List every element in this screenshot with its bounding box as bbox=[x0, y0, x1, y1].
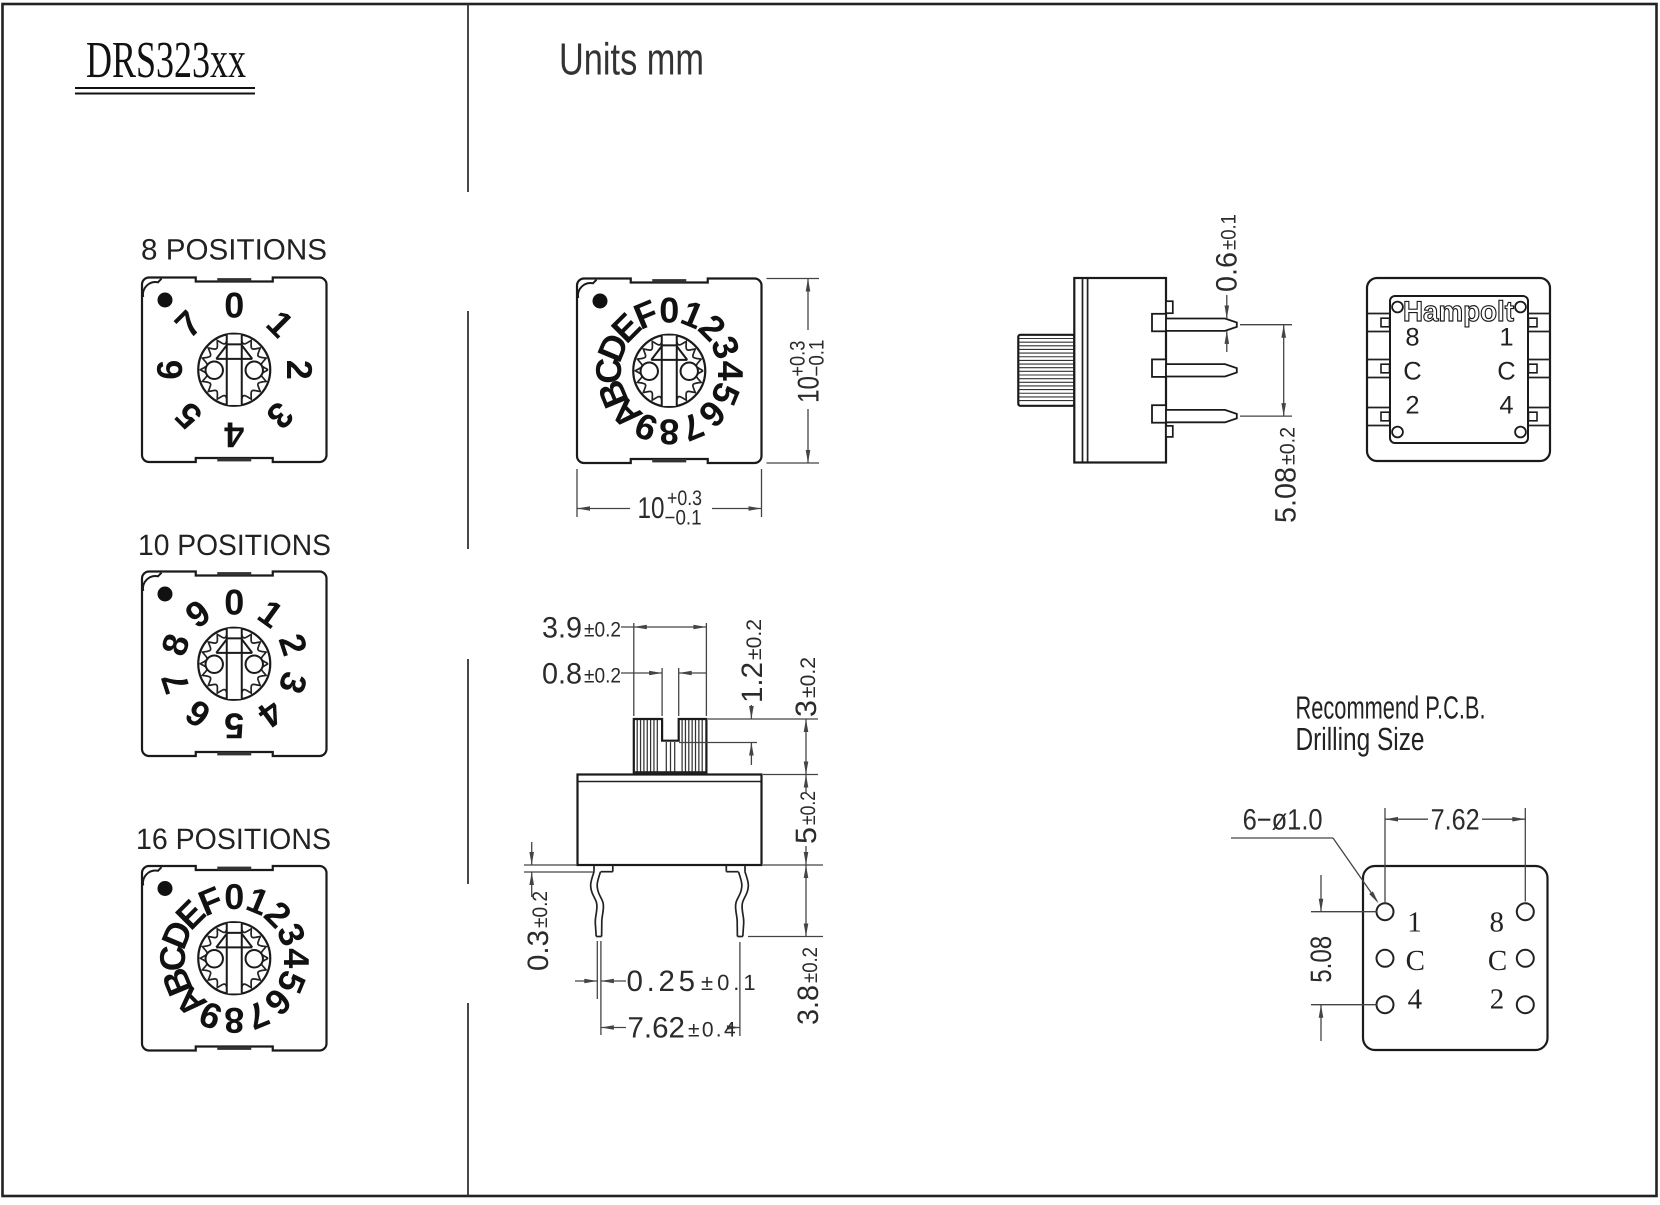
svg-text:±0.2: ±0.2 bbox=[584, 665, 621, 688]
svg-text:1: 1 bbox=[1499, 324, 1513, 352]
svg-text:1: 1 bbox=[1407, 907, 1422, 939]
svg-text:4: 4 bbox=[224, 414, 244, 455]
svg-text:±0.2: ±0.2 bbox=[743, 619, 766, 660]
svg-text:DRS323xx: DRS323xx bbox=[86, 32, 246, 89]
svg-text:±0.2: ±0.2 bbox=[799, 947, 822, 983]
svg-text:C: C bbox=[1406, 945, 1425, 977]
svg-text:C: C bbox=[1488, 945, 1507, 977]
svg-text:4: 4 bbox=[710, 361, 751, 381]
svg-text:±0.2: ±0.2 bbox=[1277, 427, 1300, 465]
svg-text:10: 10 bbox=[638, 492, 665, 525]
svg-text:4: 4 bbox=[1408, 983, 1423, 1015]
svg-text:3: 3 bbox=[790, 700, 823, 717]
svg-text:0.8: 0.8 bbox=[542, 658, 582, 691]
svg-text:8: 8 bbox=[659, 411, 679, 452]
svg-text:±0.1: ±0.1 bbox=[701, 970, 760, 995]
svg-text:C: C bbox=[1403, 358, 1421, 386]
svg-text:8: 8 bbox=[1405, 324, 1419, 352]
svg-text:2: 2 bbox=[1490, 983, 1505, 1015]
svg-text:4: 4 bbox=[1499, 392, 1513, 420]
svg-text:5.08: 5.08 bbox=[1305, 936, 1338, 983]
svg-text:1.2: 1.2 bbox=[736, 662, 769, 703]
svg-text:−0.1: −0.1 bbox=[665, 507, 702, 530]
svg-text:2: 2 bbox=[279, 360, 320, 380]
svg-text:7.62: 7.62 bbox=[1431, 804, 1480, 837]
svg-text:0: 0 bbox=[224, 284, 244, 325]
svg-text:8 POSITIONS: 8 POSITIONS bbox=[141, 234, 327, 267]
svg-text:Hampolt: Hampolt bbox=[1403, 296, 1514, 328]
svg-text:±0.2: ±0.2 bbox=[797, 657, 820, 698]
svg-text:6: 6 bbox=[149, 360, 190, 380]
svg-text:3.9: 3.9 bbox=[542, 612, 582, 645]
svg-text:0.6: 0.6 bbox=[1211, 252, 1244, 292]
svg-text:±0.2: ±0.2 bbox=[529, 891, 552, 928]
svg-text:−0.1: −0.1 bbox=[806, 340, 829, 377]
svg-text:Drilling Size: Drilling Size bbox=[1296, 721, 1425, 757]
svg-text:10: 10 bbox=[793, 376, 826, 403]
svg-text:0.25: 0.25 bbox=[627, 965, 699, 998]
svg-text:0.3: 0.3 bbox=[522, 930, 555, 971]
svg-text:5: 5 bbox=[790, 827, 823, 844]
svg-text:±0.1: ±0.1 bbox=[1218, 214, 1241, 250]
svg-text:0: 0 bbox=[224, 581, 244, 622]
svg-text:5: 5 bbox=[224, 705, 244, 746]
svg-text:8: 8 bbox=[224, 1000, 244, 1041]
svg-text:±0.4: ±0.4 bbox=[688, 1019, 738, 1042]
svg-text:7.62: 7.62 bbox=[628, 1012, 685, 1045]
svg-text:±0.2: ±0.2 bbox=[797, 791, 820, 825]
svg-text:Units mm: Units mm bbox=[559, 34, 704, 85]
svg-text:5.08: 5.08 bbox=[1270, 467, 1303, 523]
svg-text:0: 0 bbox=[659, 289, 679, 330]
svg-text:2: 2 bbox=[1405, 392, 1419, 420]
svg-text:6−ø1.0: 6−ø1.0 bbox=[1243, 804, 1323, 837]
svg-text:3.8: 3.8 bbox=[792, 985, 825, 1025]
svg-text:C: C bbox=[1497, 358, 1515, 386]
svg-text:4: 4 bbox=[276, 948, 317, 968]
svg-text:16 POSITIONS: 16 POSITIONS bbox=[136, 823, 331, 856]
svg-text:±0.2: ±0.2 bbox=[584, 619, 621, 642]
svg-text:8: 8 bbox=[1489, 907, 1504, 939]
svg-text:10 POSITIONS: 10 POSITIONS bbox=[138, 529, 331, 562]
svg-text:0: 0 bbox=[224, 876, 244, 917]
